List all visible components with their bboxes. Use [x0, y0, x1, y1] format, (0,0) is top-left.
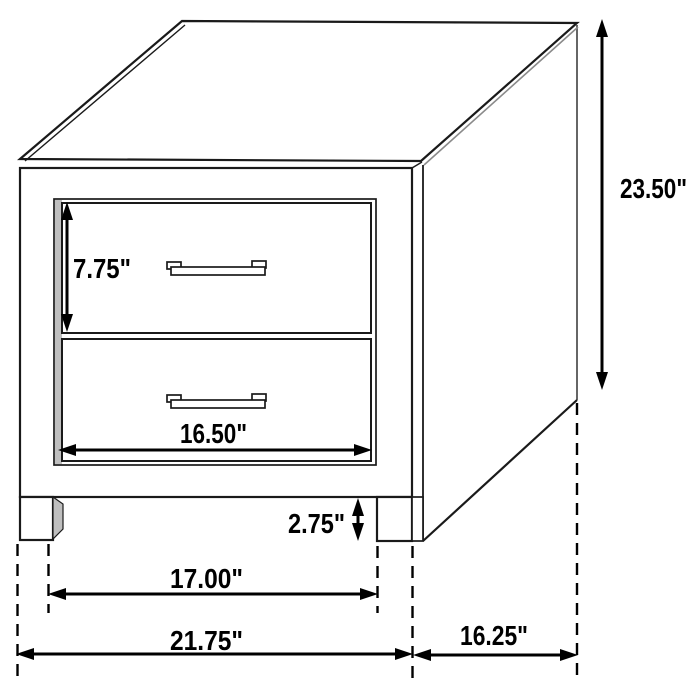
dim-depth: 16.25" — [413, 620, 578, 661]
dim-label-total-width: 21.75" — [170, 625, 243, 656]
dim-inner-leg-width: 17.00" — [48, 563, 378, 600]
arrowhead-up — [352, 498, 364, 516]
dim-label-total-height: 23.50" — [620, 173, 687, 204]
dim-label-inner-leg-width: 17.00" — [170, 563, 243, 594]
arrowhead-up — [596, 19, 608, 37]
nightstand-dimension-diagram: 7.75" 16.50" 2.75" 17.00" — [0, 0, 700, 700]
arrowhead-right — [395, 648, 413, 660]
dim-label-depth: 16.25" — [460, 620, 528, 651]
front-top-corner-miter — [412, 162, 422, 168]
arrowhead-down — [596, 372, 608, 390]
dim-base-clearance: 2.75" — [288, 498, 364, 541]
dim-total-height: 23.50" — [596, 19, 687, 390]
front-left-leg-inner-face — [53, 497, 63, 539]
front-left-leg — [20, 497, 53, 540]
front-right-leg — [377, 497, 412, 541]
handle-bar — [171, 400, 265, 408]
arrowhead-left — [48, 588, 66, 600]
front-right-leg-side-face — [412, 497, 423, 541]
drawer-opening-left-shade — [55, 200, 62, 464]
dim-label-drawer-height: 7.75" — [73, 253, 131, 284]
dim-total-width: 21.75" — [16, 625, 413, 660]
diagram-canvas: 7.75" 16.50" 2.75" 17.00" — [0, 0, 700, 700]
arrowhead-left — [16, 648, 34, 660]
dim-label-base-clearance: 2.75" — [288, 508, 345, 539]
arrowhead-right — [360, 588, 378, 600]
arrowhead-right — [560, 649, 578, 661]
arrowhead-down — [352, 523, 364, 541]
arrowhead-left — [413, 649, 431, 661]
dim-label-drawer-width: 16.50" — [180, 418, 247, 449]
handle-bar — [171, 267, 265, 275]
